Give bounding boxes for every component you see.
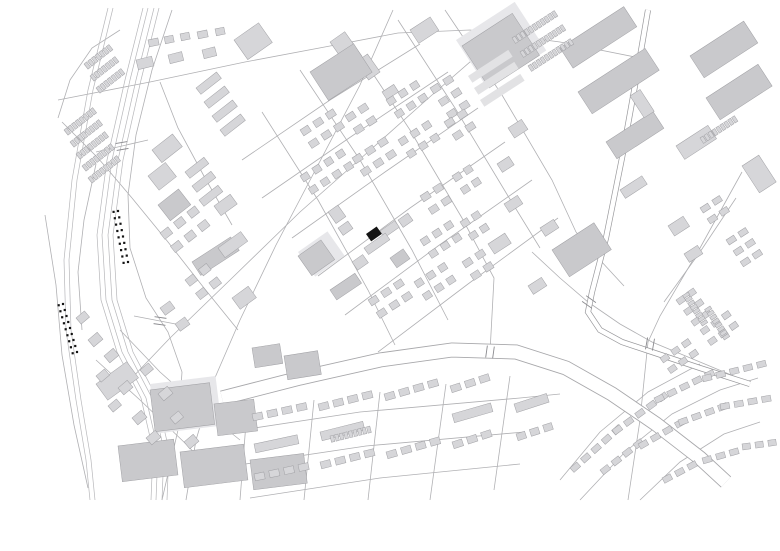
- river-canal: [588, 10, 750, 384]
- site-plan-page: [0, 0, 780, 551]
- site-plan-map: [0, 0, 780, 551]
- tree-rows: [58, 210, 130, 354]
